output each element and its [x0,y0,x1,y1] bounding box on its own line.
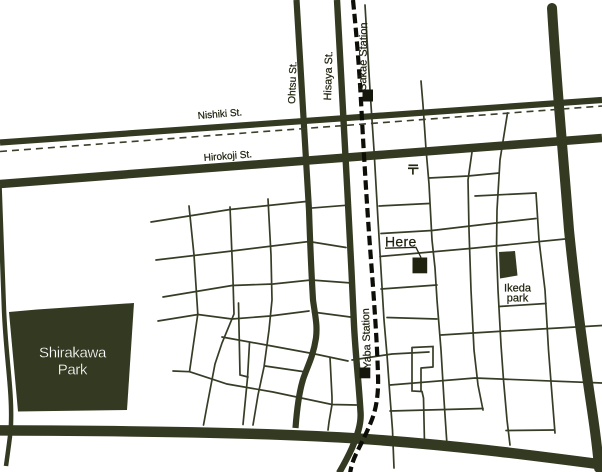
svg-text:Park: Park [58,362,88,379]
svg-text:Yaba Station: Yaba Station [360,308,374,369]
svg-text:Ohtsu St.: Ohtsu St. [287,61,299,104]
svg-text:Here: Here [385,234,417,250]
svg-text:Hisaya St.: Hisaya St. [322,51,335,101]
svg-text:Sakae Station: Sakae Station [357,22,370,91]
svg-text:Shirakawa: Shirakawa [39,345,107,362]
svg-text:park: park [507,293,529,305]
